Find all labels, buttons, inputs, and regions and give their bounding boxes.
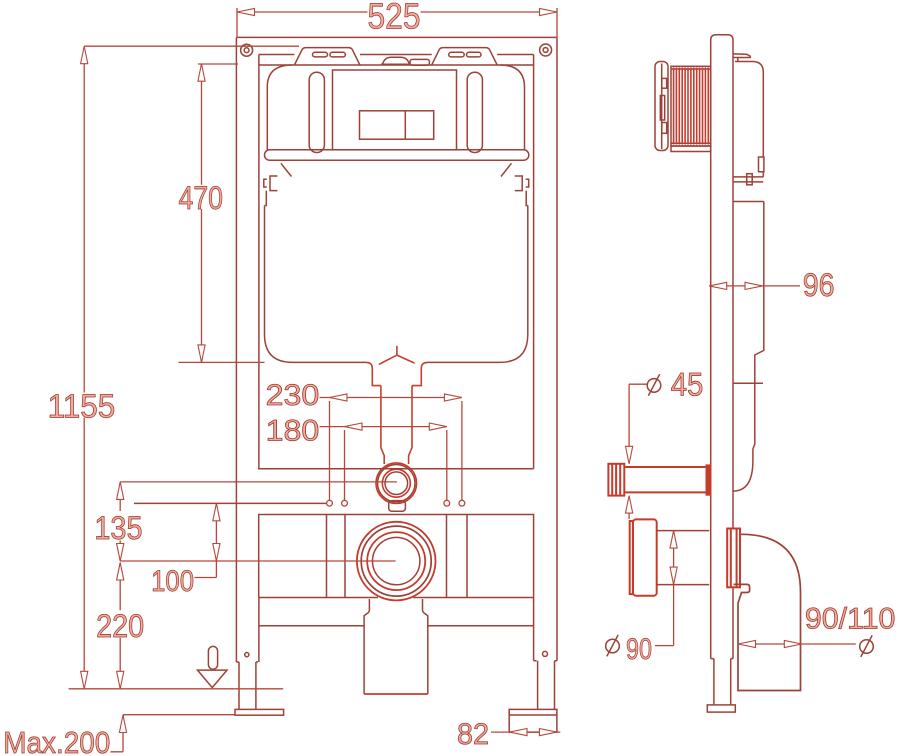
svg-text:470: 470 — [179, 180, 224, 216]
svg-text:100: 100 — [151, 565, 194, 598]
svg-text:96: 96 — [803, 267, 835, 303]
svg-text:1155: 1155 — [48, 388, 116, 425]
svg-text:Max.200: Max.200 — [3, 725, 110, 756]
svg-text:90/110: 90/110 — [805, 603, 896, 636]
svg-text:220: 220 — [96, 608, 144, 644]
svg-text:45: 45 — [671, 367, 704, 403]
svg-text:525: 525 — [368, 0, 421, 37]
svg-text:135: 135 — [94, 510, 142, 546]
svg-text:90: 90 — [626, 633, 652, 666]
svg-text:230: 230 — [266, 379, 320, 412]
svg-text:82: 82 — [457, 718, 489, 751]
svg-text:180: 180 — [266, 414, 320, 447]
